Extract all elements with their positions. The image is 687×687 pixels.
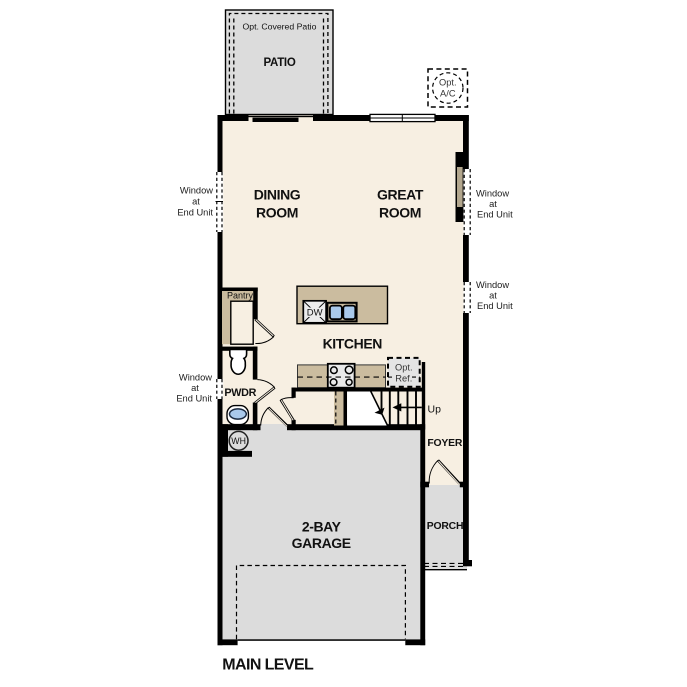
svg-text:End Unit: End Unit <box>477 301 513 311</box>
svg-text:DW: DW <box>307 308 323 319</box>
svg-text:Window: Window <box>179 373 212 383</box>
svg-text:Opt.: Opt. <box>439 78 457 88</box>
svg-text:Up: Up <box>428 404 442 416</box>
svg-text:MAIN LEVEL: MAIN LEVEL <box>222 657 314 674</box>
svg-text:End Unit: End Unit <box>477 210 513 220</box>
svg-text:at: at <box>489 199 497 209</box>
svg-text:PATIO: PATIO <box>264 57 296 69</box>
svg-text:End Unit: End Unit <box>176 394 212 404</box>
svg-text:PWDR: PWDR <box>224 387 256 399</box>
svg-text:Pantry: Pantry <box>227 290 254 300</box>
svg-text:KITCHEN: KITCHEN <box>323 336 383 352</box>
svg-text:at: at <box>489 291 497 301</box>
svg-text:ROOM: ROOM <box>379 205 421 221</box>
svg-text:PORCH: PORCH <box>427 521 464 532</box>
svg-text:at: at <box>192 197 200 207</box>
svg-text:Ref.: Ref. <box>395 374 412 384</box>
svg-text:Window: Window <box>476 280 509 290</box>
svg-text:Opt. Covered Patio: Opt. Covered Patio <box>243 22 317 32</box>
svg-text:End Unit: End Unit <box>177 208 213 218</box>
svg-text:Window: Window <box>180 186 213 196</box>
svg-text:WH: WH <box>231 436 246 446</box>
svg-text:DINING: DINING <box>254 187 301 203</box>
svg-text:A/C: A/C <box>440 89 456 99</box>
svg-text:FOYER: FOYER <box>427 438 462 449</box>
svg-text:at: at <box>191 383 199 393</box>
svg-text:GREAT: GREAT <box>377 187 424 203</box>
svg-text:2-BAY: 2-BAY <box>302 519 342 535</box>
svg-text:GARAGE: GARAGE <box>292 535 351 551</box>
svg-text:Opt.: Opt. <box>395 363 413 373</box>
svg-text:Window: Window <box>476 189 509 199</box>
svg-text:ROOM: ROOM <box>256 205 298 221</box>
